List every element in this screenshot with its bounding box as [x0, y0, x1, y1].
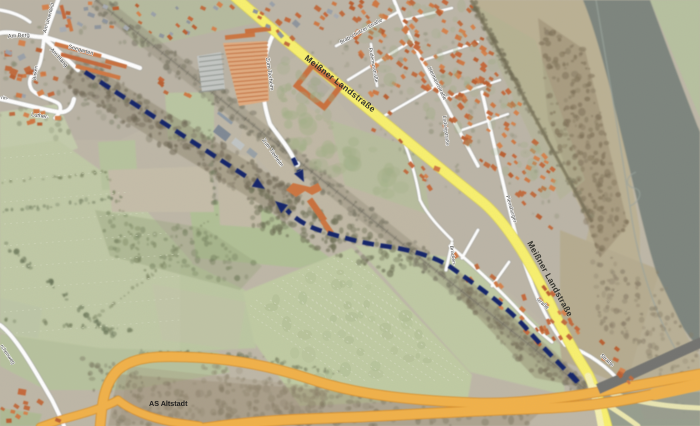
- svg-text:AS Altstadt: AS Altstadt: [149, 399, 188, 408]
- svg-text:rin-: rin-: [1, 95, 9, 102]
